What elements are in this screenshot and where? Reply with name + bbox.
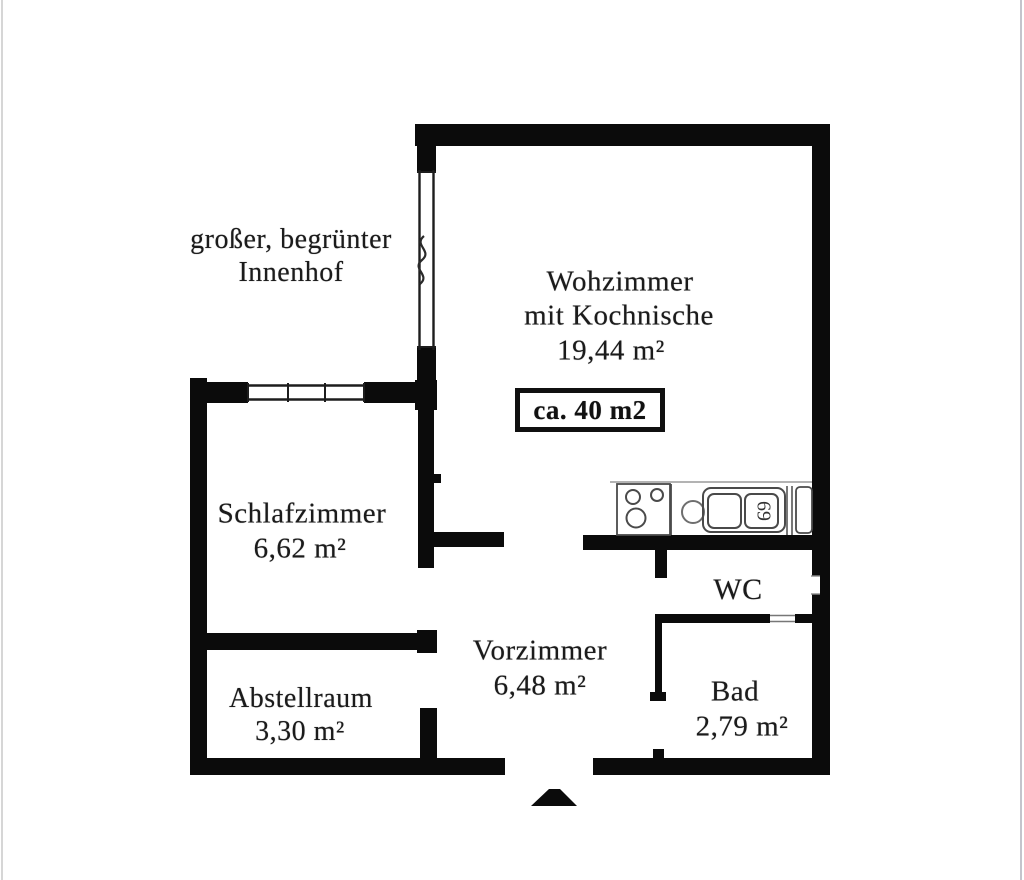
wall-bad-door-jamb xyxy=(653,749,664,758)
sink-marking: 69 xyxy=(752,501,774,521)
room-label-schlafzimmer: Schlafzimmer xyxy=(218,500,387,529)
wall-right xyxy=(812,124,830,775)
room-label-wohnzimmer-line1: Wohzimmer xyxy=(546,268,693,297)
room-area-schlafzimmer: 6,62 m² xyxy=(254,535,347,564)
bedroom-window-icon xyxy=(248,383,364,402)
wc-bad-door xyxy=(770,616,795,622)
room-label-wohnzimmer-line2: mit Kochnische xyxy=(524,302,714,331)
kitchenette: 69 xyxy=(610,482,812,535)
wall-top xyxy=(415,124,830,146)
room-area-bad: 2,79 m² xyxy=(696,713,789,742)
wall-kitchen xyxy=(583,535,830,550)
room-label-bad: Bad xyxy=(711,678,759,707)
wall-bedroom-top-left xyxy=(190,382,248,403)
room-label-vorzimmer: Vorzimmer xyxy=(473,637,607,666)
wall-storage-right-stub xyxy=(420,708,437,758)
room-area-wohnzimmer: 19,44 m² xyxy=(557,337,665,366)
stove-icon xyxy=(617,484,670,535)
wall-livingroom-left-bottom xyxy=(417,348,436,384)
wall-bottom-right-segment xyxy=(593,758,830,775)
wc-window-icon xyxy=(811,576,820,594)
courtyard-window-icon xyxy=(417,170,436,350)
wall-wc-bad-divider-right xyxy=(795,614,817,623)
wall-wc-bad-divider-left xyxy=(655,614,770,623)
courtyard-label-line1: großer, begrünter xyxy=(190,226,392,254)
wall-bad-left xyxy=(655,623,662,698)
wall-bottom-left-segment xyxy=(190,758,505,775)
courtyard-label-line2: Innenhof xyxy=(238,259,343,287)
wall-livingroom-left-top xyxy=(417,146,436,172)
wall-bedroom-top-right xyxy=(364,382,417,403)
entrance-arrow-icon xyxy=(531,789,577,806)
wall-bedroom-storage-divider xyxy=(190,633,420,650)
wall-hall-stub xyxy=(434,532,504,547)
wall-left-outer xyxy=(190,378,207,775)
wall-junction-block xyxy=(415,380,437,410)
room-area-abstellraum: 3,30 m² xyxy=(255,718,345,746)
sink-icon: 69 xyxy=(703,488,785,532)
wall-wc-left-stub xyxy=(655,548,667,578)
wall-doorjamb-nub xyxy=(434,474,441,483)
round-basin-icon xyxy=(682,501,704,523)
room-area-vorzimmer: 6,48 m² xyxy=(494,672,587,701)
room-label-abstellraum: Abstellraum xyxy=(229,685,373,713)
room-label-wc: WC xyxy=(713,575,762,605)
floorplan-drawing: 69 xyxy=(0,0,1024,880)
total-size-box: ca. 40 m2 xyxy=(515,388,665,432)
wall-bad-left-foot xyxy=(650,692,666,701)
floorplan-canvas: 69 großer, begrünter Innenhof Wohzimmer … xyxy=(0,0,1024,880)
appliance-icon xyxy=(796,487,812,533)
wall-livingroom-left-lower xyxy=(418,408,434,568)
total-size-label: ca. 40 m2 xyxy=(533,395,646,426)
wall-divider-endcap xyxy=(417,630,437,653)
